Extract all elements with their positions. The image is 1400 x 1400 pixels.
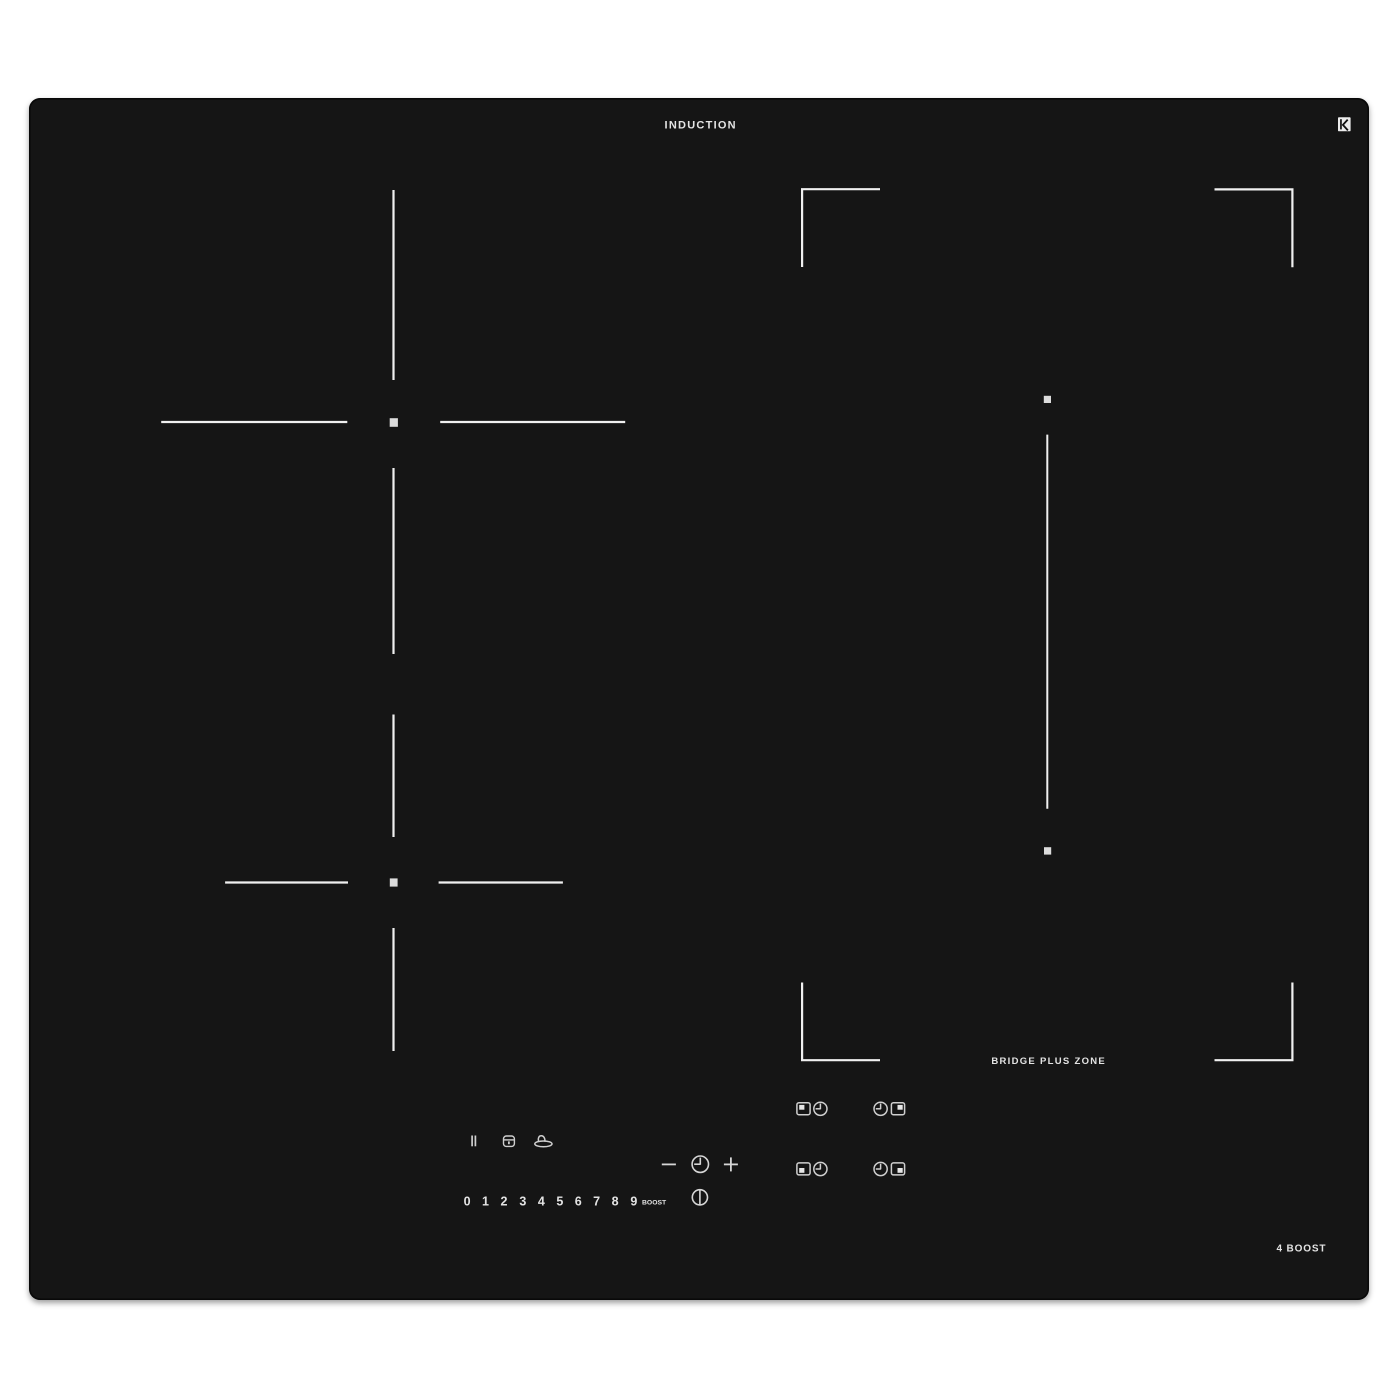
svg-text:6: 6 — [575, 1195, 582, 1209]
svg-text:BOOST: BOOST — [642, 1199, 667, 1206]
svg-text:3: 3 — [519, 1195, 526, 1209]
svg-text:1: 1 — [482, 1195, 489, 1209]
svg-text:BRIDGE PLUS ZONE: BRIDGE PLUS ZONE — [991, 1056, 1106, 1067]
svg-text:9: 9 — [630, 1195, 637, 1209]
svg-text:5: 5 — [556, 1195, 563, 1209]
svg-text:8: 8 — [612, 1195, 619, 1209]
svg-text:0: 0 — [464, 1195, 471, 1209]
svg-text:INDUCTION: INDUCTION — [665, 120, 737, 132]
svg-text:7: 7 — [593, 1195, 600, 1209]
svg-text:2: 2 — [501, 1195, 508, 1209]
svg-text:4 BOOST: 4 BOOST — [1276, 1244, 1326, 1255]
svg-text:4: 4 — [538, 1195, 545, 1209]
